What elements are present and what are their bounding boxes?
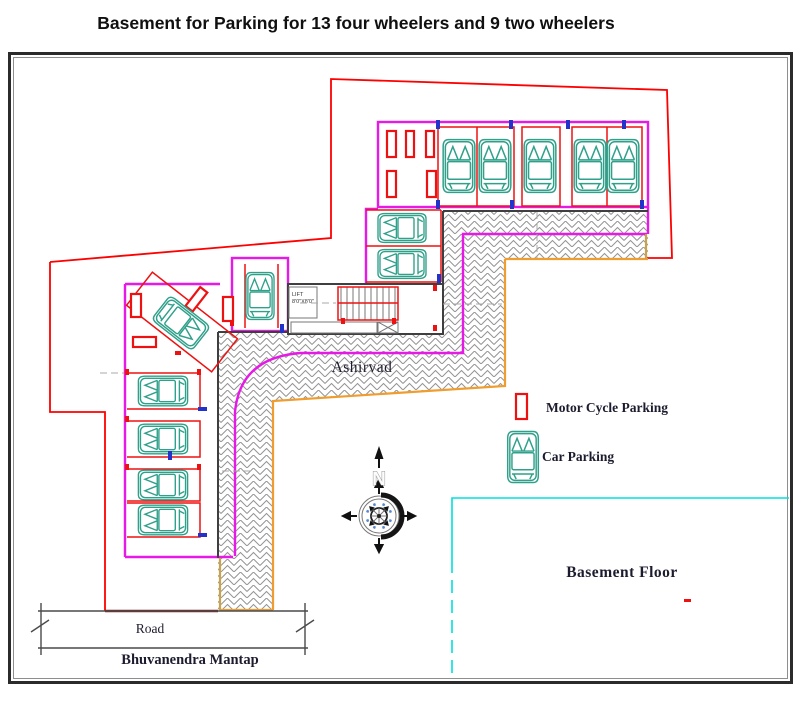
drawing-frame-inner-border — [13, 57, 788, 679]
drawing-title: Basement for Parking for 13 four wheeler… — [0, 13, 712, 34]
basement-parking-drawing: Basement for Parking for 13 four wheeler… — [0, 0, 800, 710]
drawing-frame — [8, 52, 793, 684]
